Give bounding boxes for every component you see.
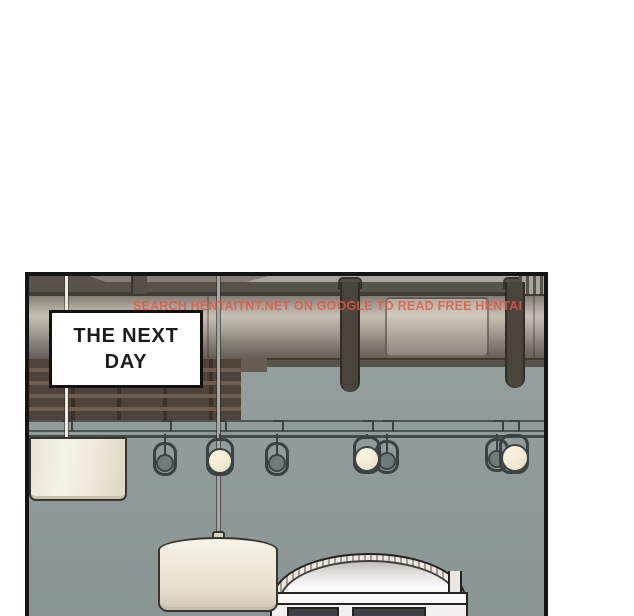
pendant-lamp-left <box>29 437 127 501</box>
caption-line-2: DAY <box>105 349 148 375</box>
caption-line-1: THE NEXT <box>73 323 178 349</box>
caption-box: THE NEXT DAY <box>49 310 203 388</box>
cable-step <box>509 420 520 431</box>
lamp-cord-center <box>217 276 220 538</box>
cable-step <box>161 420 172 431</box>
track-light-3-bulb-unlit <box>268 454 286 472</box>
track-light-1-bulb-unlit <box>156 454 174 472</box>
headboard-base <box>270 605 468 616</box>
ceiling-beam <box>29 282 544 294</box>
track-light-7-bulb-lit <box>501 444 529 472</box>
comic-reader-page: SEARCH HENTAITNT.NET ON GOOGLE TO READ F… <box>0 0 634 616</box>
comic-panel[interactable]: SEARCH HENTAITNT.NET ON GOOGLE TO READ F… <box>25 272 548 616</box>
pipe-hanger-strap-2 <box>505 282 525 388</box>
wall-line <box>29 420 544 422</box>
cable-step <box>273 420 284 431</box>
headboard-rail <box>270 592 468 605</box>
cable-step <box>493 420 504 431</box>
cable-step <box>363 420 374 431</box>
pendant-lamp-center <box>158 537 278 612</box>
headboard-inset-panel-left <box>287 607 339 616</box>
track-rail-top <box>29 430 544 432</box>
headboard-inset-panel-right <box>352 607 426 616</box>
track-light-4-bulb-lit <box>354 446 380 472</box>
cable-step <box>383 420 394 431</box>
track-light-2-bulb-lit <box>207 448 233 474</box>
